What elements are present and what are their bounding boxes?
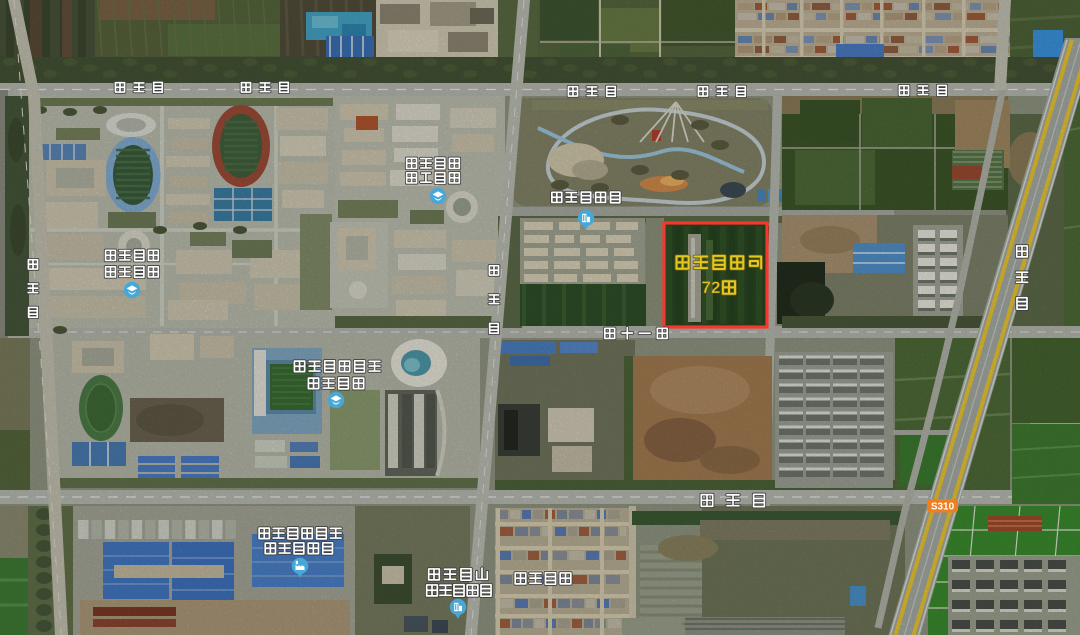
svg-text:72: 72 (702, 278, 721, 297)
svg-text:S310: S310 (931, 502, 955, 513)
